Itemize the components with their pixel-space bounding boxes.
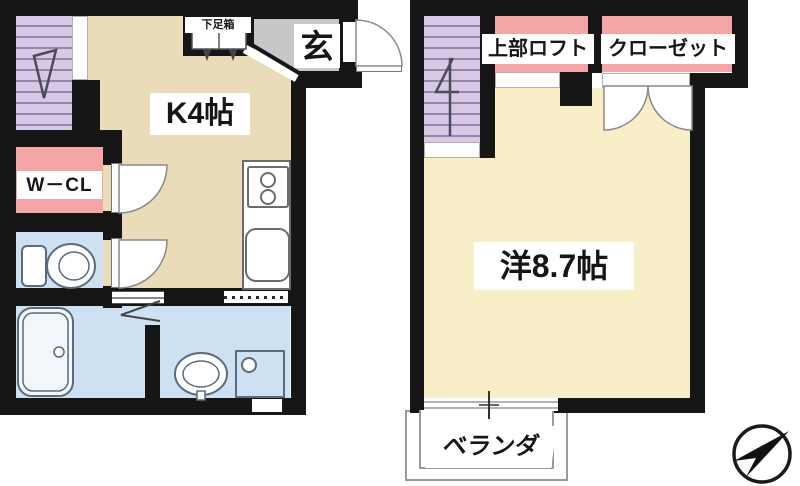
veranda-window-gap	[424, 398, 558, 411]
toilet-room-floor	[16, 232, 103, 288]
entrance-door-leaf	[356, 61, 402, 72]
wall-f1-right	[291, 72, 306, 415]
wall-f2-stairs-right	[480, 0, 495, 158]
wall-f1-left	[0, 0, 16, 415]
stairs-second-floor	[424, 16, 480, 142]
stairs-first-floor	[16, 16, 72, 130]
loft-edge	[495, 72, 560, 88]
shoebox-label: 下足箱	[185, 17, 251, 33]
toilet-door-leaf	[111, 238, 122, 288]
wall-jamb-middle	[103, 211, 122, 240]
bottom-wall-vent	[252, 399, 282, 412]
washroom-sliding-door	[112, 291, 164, 304]
closet-label: クローゼット	[601, 34, 735, 64]
floorplan-canvas: 下足箱 玄 K4帖 W－CL 上部ロフト クローゼット 洋8.7帖 ベランダ	[0, 0, 800, 486]
loft-label: 上部ロフト	[482, 34, 594, 64]
stairs-opening	[72, 16, 88, 80]
entrance-door-swing	[356, 20, 402, 66]
kitchen-label: K4帖	[150, 93, 250, 135]
wall-f1-entry-corner	[341, 0, 358, 22]
wall-f1-top	[0, 0, 358, 16]
north-compass-arrow-icon	[734, 431, 789, 477]
wall-wcl-top	[16, 130, 122, 147]
wcl-door-leaf	[111, 163, 122, 213]
wall-loft-stub	[560, 72, 592, 106]
wall-f2-left	[410, 0, 424, 413]
wall-f2-right	[690, 73, 705, 398]
closet-front	[602, 73, 690, 88]
western-room-label: 洋8.7帖	[474, 242, 634, 290]
wall-f2-top	[410, 0, 748, 16]
stairs-landing	[424, 142, 480, 158]
north-compass-circle	[734, 426, 790, 482]
kitchen-accordion-window	[224, 291, 288, 303]
entrance-label: 玄	[294, 24, 340, 68]
wall-bath-divider	[145, 325, 160, 398]
kitchen-counter	[242, 160, 291, 290]
walk-in-closet-label: W－CL	[17, 171, 102, 199]
veranda-label: ベランダ	[425, 426, 557, 468]
